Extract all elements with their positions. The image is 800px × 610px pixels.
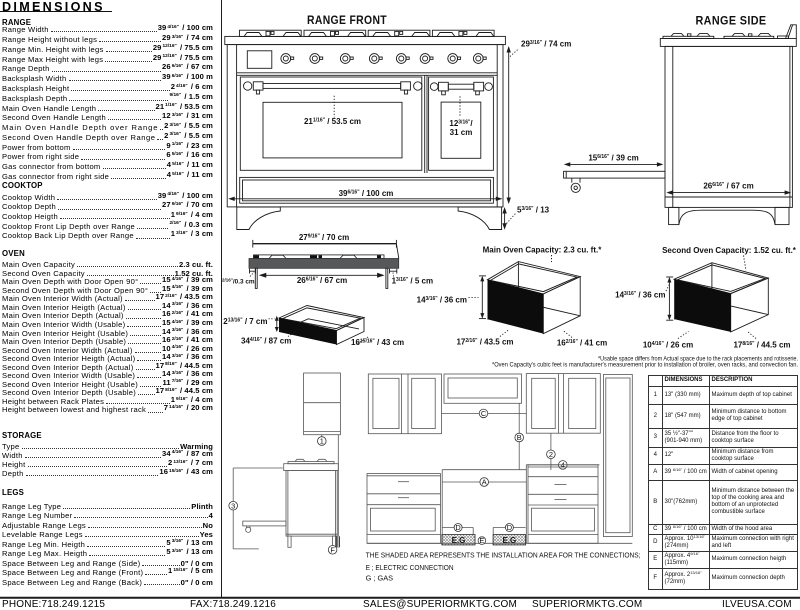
svg-text:2/16"/0.3 cm: 2/16"/0.3 cm (222, 277, 255, 285)
svg-text:Main Oven Capacity: 2.3 cu. ft: Main Oven Capacity: 2.3 cu. ft.* (483, 245, 603, 254)
svg-text:178/16" / 44.5 cm: 178/16" / 44.5 cm (733, 340, 790, 349)
svg-text:53/16" / 13: 53/16" / 13 (517, 206, 550, 215)
svg-text:1615/16" / 43 cm: 1615/16" / 43 cm (351, 338, 404, 347)
svg-text:RANGE SIDE: RANGE SIDE (696, 14, 767, 28)
svg-text:104/16" / 26 cm: 104/16" / 26 cm (643, 340, 693, 349)
svg-text:143/16" / 36 cm: 143/16" / 36 cm (615, 291, 665, 300)
svg-text:13/16" / 5 cm: 13/16" / 5 cm (392, 276, 433, 285)
svg-text:172/16" / 43.5 cm: 172/16" / 43.5 cm (456, 338, 513, 347)
svg-text:A: A (482, 478, 487, 487)
svg-text:C: C (481, 409, 487, 418)
svg-text:E ; ELECTRIC CONNECTION: E ; ELECTRIC CONNECTION (366, 563, 454, 572)
svg-text:RANGE FRONT: RANGE FRONT (307, 13, 387, 27)
svg-text:3: 3 (231, 501, 235, 510)
svg-text:266/16" / 67 cm: 266/16" / 67 cm (703, 182, 753, 191)
svg-text:31 cm: 31 cm (450, 128, 473, 137)
svg-text:D: D (507, 523, 512, 532)
svg-text:B: B (517, 433, 522, 442)
svg-text:*Oven Capacity's cubic feet is: *Oven Capacity's cubic feet is manufactu… (492, 362, 798, 369)
svg-text:2: 2 (549, 450, 553, 459)
svg-text:THE SHADED AREA REPRESENTS THE: THE SHADED AREA REPRESENTS THE INSTALLAT… (366, 550, 641, 559)
svg-text:279/16" / 70 cm: 279/16" / 70 cm (299, 233, 349, 242)
svg-text:344/16" / 87 cm: 344/16" / 87 cm (241, 336, 291, 345)
svg-text:156/16" / 39 cm: 156/16" / 39 cm (588, 154, 638, 163)
svg-text:G ; GAS: G ; GAS (366, 574, 394, 583)
svg-text:293/16" / 74 cm: 293/16" / 74 cm (521, 40, 571, 49)
svg-text:266/16" / 67 cm: 266/16" / 67 cm (297, 276, 347, 285)
svg-text:E.G: E.G (503, 536, 517, 545)
svg-text:F: F (330, 545, 335, 554)
svg-text:Second Oven Capacity: 1.52 cu.: Second Oven Capacity: 1.52 cu. ft.* (662, 246, 797, 255)
svg-text:162/16" / 41 cm: 162/16" / 41 cm (557, 339, 607, 348)
svg-text:D: D (455, 523, 460, 532)
svg-text:1: 1 (320, 437, 324, 446)
svg-text:396/16" / 100 cm: 396/16" / 100 cm (339, 189, 394, 198)
svg-text:E.G: E.G (452, 536, 466, 545)
svg-text:143/16" / 36 cm: 143/16" / 36 cm (417, 296, 467, 305)
svg-text:213/16" / 7 cm: 213/16" / 7 cm (223, 317, 267, 326)
svg-text:E: E (479, 536, 484, 545)
svg-text:211/16" / 53.5 cm: 211/16" / 53.5 cm (304, 117, 361, 126)
svg-text:123/16"/: 123/16"/ (449, 119, 473, 128)
